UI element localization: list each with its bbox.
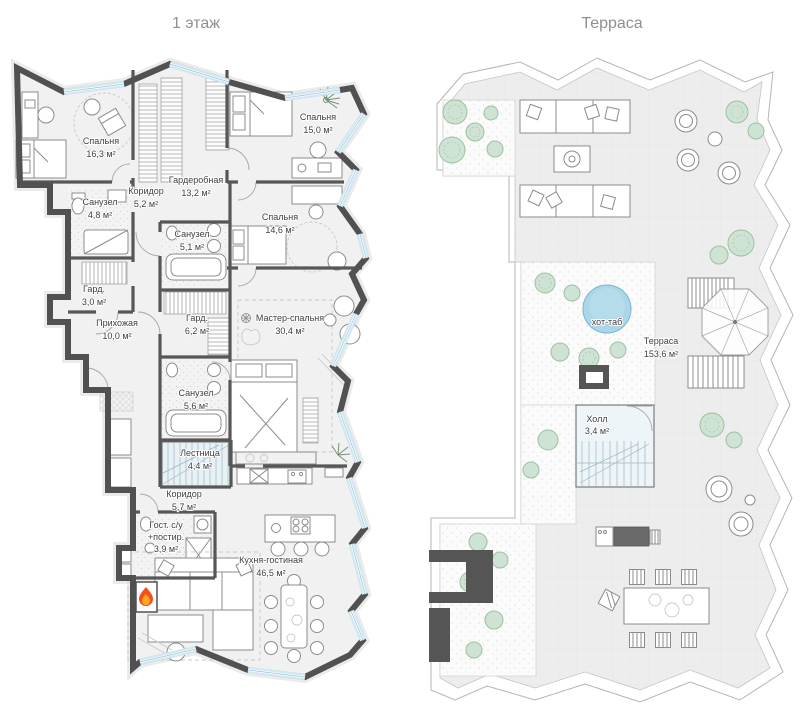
shower-icon bbox=[84, 230, 128, 254]
room-label-hottub: хот-таб bbox=[592, 317, 623, 327]
room-label-closet1-name: Гард. bbox=[83, 284, 105, 294]
tree-icon bbox=[484, 106, 498, 120]
tree-icon bbox=[538, 430, 558, 450]
room-label-corridor2-name: Коридор bbox=[166, 489, 202, 499]
room-label-bath3-name: Санузел bbox=[178, 388, 213, 398]
tree-icon bbox=[466, 642, 482, 658]
fire-table-icon bbox=[554, 146, 590, 172]
wardrobe-icon bbox=[139, 84, 157, 182]
tree-icon bbox=[748, 123, 764, 139]
ottoman-icon bbox=[324, 314, 336, 326]
room-label-bath2-area: 5,1 м² bbox=[180, 242, 204, 252]
tree-icon bbox=[710, 246, 728, 264]
armchair-icon bbox=[334, 296, 354, 316]
tree-icon bbox=[439, 137, 465, 163]
floor1-plan bbox=[16, 64, 366, 677]
tree-icon bbox=[487, 141, 503, 157]
tree-icon bbox=[728, 230, 754, 256]
coffee-table-icon bbox=[148, 615, 203, 642]
tree-icon bbox=[551, 343, 569, 361]
room-label-master-area: 30,4 м² bbox=[275, 326, 304, 336]
lounger-icon bbox=[688, 356, 744, 388]
room-label-hall-area: 3,4 м² bbox=[585, 426, 609, 436]
bed-icon bbox=[231, 360, 297, 452]
outdoor-sofa-icon bbox=[520, 100, 630, 133]
tree-icon bbox=[610, 342, 626, 358]
floor1-title: 1 этаж bbox=[172, 15, 220, 32]
tree-icon bbox=[443, 100, 467, 124]
room-label-bath1-area: 4,8 м² bbox=[88, 210, 112, 220]
room-label-corridor1-area: 5,2 м² bbox=[134, 199, 158, 209]
room-label-guestwc-name: Гост. с/у bbox=[149, 520, 183, 530]
closet-rail-icon bbox=[164, 292, 226, 314]
room-label-corridor2-area: 5,7 м² bbox=[172, 502, 196, 512]
washer-icon bbox=[194, 516, 211, 533]
room-label-guestwc-area: 3,9 м² bbox=[154, 544, 178, 554]
terrace-plan bbox=[429, 58, 793, 702]
room-label-bedroom3-area: 14,6 м² bbox=[265, 225, 294, 235]
entry-mat bbox=[100, 392, 133, 411]
sink-icon bbox=[208, 364, 221, 377]
room-label-bath2-name: Санузел bbox=[174, 229, 209, 239]
room-label-guestwc-name2: +постир. bbox=[148, 532, 184, 542]
floorplan-page: 1 этаж Терраса bbox=[0, 0, 812, 719]
tree-icon bbox=[466, 123, 484, 141]
ceiling-fan-icon bbox=[242, 314, 251, 323]
room-label-entry-name: Прихожая bbox=[96, 318, 138, 328]
room-label-bedroom1-name: Спальня bbox=[83, 136, 119, 146]
tree-icon bbox=[485, 611, 503, 629]
room-label-wardrobe-name: Гардеробная bbox=[169, 175, 224, 185]
shaft-icon bbox=[110, 458, 131, 487]
room-label-hall-name: Холл bbox=[586, 414, 607, 424]
room-label-bedroom2-area: 15,0 м² bbox=[303, 125, 332, 135]
room-label-kitchen-area: 46,5 м² bbox=[256, 568, 285, 578]
closet-rail-icon bbox=[208, 318, 230, 355]
room-label-terrace-area: 153,6 м² bbox=[644, 349, 678, 359]
room-label-entry-area: 10,0 м² bbox=[102, 331, 131, 341]
kitchen-island-icon bbox=[265, 515, 335, 556]
chimney-icon bbox=[579, 365, 609, 389]
tree-icon bbox=[492, 552, 508, 568]
closet-rail-icon bbox=[82, 262, 127, 284]
sink-icon bbox=[208, 240, 221, 253]
tree-icon bbox=[726, 101, 748, 123]
floorplan-canvas: 1 этаж Терраса bbox=[0, 0, 812, 719]
room-label-closet1-area: 3,0 м² bbox=[82, 297, 106, 307]
bench-icon bbox=[303, 398, 318, 443]
tree-icon bbox=[523, 462, 539, 478]
tree-icon bbox=[469, 533, 487, 551]
terrace-title: Терраса bbox=[581, 15, 642, 32]
armchair-icon bbox=[84, 99, 100, 115]
fireplace-icon bbox=[136, 582, 157, 612]
room-label-wardrobe-area: 13,2 м² bbox=[181, 188, 210, 198]
room-label-master-name: Мастер-спальня bbox=[256, 313, 324, 323]
tree-icon bbox=[700, 413, 724, 437]
terrace-wall bbox=[429, 608, 450, 662]
umbrella-icon bbox=[702, 289, 768, 355]
shaft-icon bbox=[110, 419, 131, 455]
tree-icon bbox=[535, 273, 555, 293]
room-label-kitchen-name: Кухня-гостиная bbox=[239, 555, 303, 565]
room-label-stairs-name: Лестница bbox=[180, 448, 220, 458]
room-label-bedroom1-area: 16,3 м² bbox=[86, 149, 115, 159]
room-label-terrace-name: Терраса bbox=[644, 336, 679, 346]
room-label-closet2-name: Гард. bbox=[186, 313, 208, 323]
wardrobe-icon bbox=[161, 78, 182, 182]
bathtub-icon bbox=[166, 410, 226, 436]
room-label-bedroom2-name: Спальня bbox=[300, 112, 336, 122]
bathtub-icon bbox=[166, 254, 226, 280]
room-label-bath1-name: Санузел bbox=[82, 197, 117, 207]
room-label-bath3-area: 5,6 м² bbox=[184, 401, 208, 411]
room-label-closet2-area: 6,2 м² bbox=[185, 326, 209, 336]
room-label-bedroom3-name: Спальня bbox=[262, 212, 298, 222]
tree-icon bbox=[726, 432, 742, 448]
tree-icon bbox=[564, 285, 580, 301]
room-label-corridor1-name: Коридор bbox=[128, 186, 164, 196]
room-label-stairs-area: 4,4 м² bbox=[188, 461, 212, 471]
outdoor-sofa-icon bbox=[520, 185, 630, 217]
bed-icon bbox=[16, 140, 66, 178]
bbq-grill-icon bbox=[596, 527, 660, 546]
toilet-icon bbox=[167, 363, 178, 377]
